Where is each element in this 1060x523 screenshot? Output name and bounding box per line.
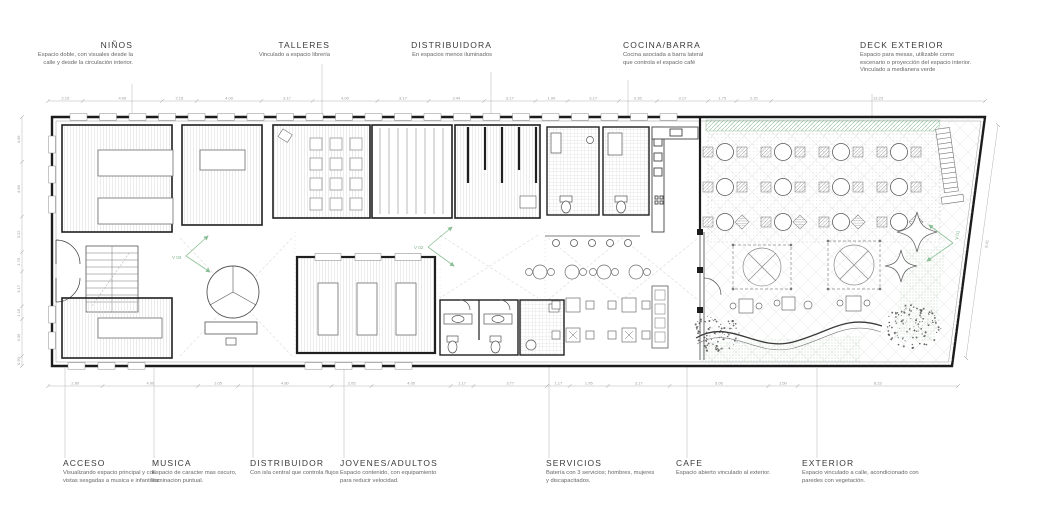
svg-text:4.00: 4.00 bbox=[341, 96, 350, 101]
annotation-cafe: CAFE Espacio abierto vinculado al exteri… bbox=[676, 458, 771, 478]
svg-text:5.06: 5.06 bbox=[715, 381, 724, 386]
svg-text:3.17: 3.17 bbox=[399, 96, 408, 101]
view-marker-v02-label: V 02 bbox=[414, 245, 424, 250]
svg-text:4.98: 4.98 bbox=[16, 185, 21, 194]
annotation-talleres: TALLERES Vinculado a espacio librería bbox=[220, 40, 330, 60]
annotation-cafe-title: CAFE bbox=[676, 458, 771, 468]
annotation-jovenes-adultos-caption: Espacio contenido, con equipamiento para… bbox=[340, 470, 448, 485]
svg-text:3.17: 3.17 bbox=[589, 96, 598, 101]
svg-text:3.44: 3.44 bbox=[452, 96, 461, 101]
room-ninos-doble bbox=[182, 125, 262, 225]
svg-text:1.15: 1.15 bbox=[16, 308, 21, 317]
deck-exterior-zone bbox=[695, 118, 984, 365]
annotation-ninos-title: NIÑOS bbox=[28, 40, 133, 50]
annotation-acceso: ACCESO Visualizando espacio principal y … bbox=[63, 458, 163, 485]
annotation-cocina-barra: COCINA/BARRA Cocina asociada a barra lat… bbox=[623, 40, 705, 67]
svg-text:3.77: 3.77 bbox=[506, 381, 515, 386]
annotation-talleres-caption: Vinculado a espacio librería bbox=[220, 52, 330, 60]
annotation-acceso-title: ACCESO bbox=[63, 458, 163, 468]
svg-text:3.36: 3.36 bbox=[16, 333, 21, 342]
svg-text:4.05: 4.05 bbox=[407, 381, 416, 386]
svg-text:3.17: 3.17 bbox=[16, 284, 21, 293]
svg-text:2.15: 2.15 bbox=[61, 96, 70, 101]
svg-text:1.17: 1.17 bbox=[458, 381, 467, 386]
annotation-exterior: EXTERIOR Espacio vinculado a calle, acon… bbox=[802, 458, 920, 485]
room-libreria bbox=[372, 125, 452, 218]
annotation-distribuidora: DISTRIBUIDORA En espacios menos iluminad… bbox=[382, 40, 492, 60]
svg-text:2.35: 2.35 bbox=[634, 96, 643, 101]
banos-servicios bbox=[440, 300, 564, 355]
annotation-distribuidor-title: DISTRIBUIDOR bbox=[250, 458, 342, 468]
annotation-servicios-caption: Batería con 3 servicios; hombres, mujere… bbox=[546, 470, 658, 485]
svg-text:3.17: 3.17 bbox=[679, 96, 688, 101]
room-distribuidora bbox=[455, 125, 540, 218]
svg-text:1.17: 1.17 bbox=[554, 381, 563, 386]
svg-text:8.23: 8.23 bbox=[874, 381, 883, 386]
annotation-cocina-barra-title: COCINA/BARRA bbox=[623, 40, 705, 50]
floor-plan-drawing: 2.154.902.154.003.174.003.173.443.171.99… bbox=[0, 0, 1060, 523]
dim-right-value: 8.41 bbox=[983, 239, 989, 248]
annotation-cafe-caption: Espacio abierto vinculado al exterior. bbox=[676, 470, 771, 478]
svg-text:4.00: 4.00 bbox=[225, 96, 234, 101]
svg-text:0.90: 0.90 bbox=[16, 356, 21, 365]
svg-text:13.23: 13.23 bbox=[873, 96, 884, 101]
annotation-ninos-caption: Espacio doble, con visuales desde la cal… bbox=[28, 52, 133, 67]
svg-text:3.17: 3.17 bbox=[506, 96, 515, 101]
svg-text:1.75: 1.75 bbox=[718, 96, 727, 101]
annotation-musica-caption: Espacio de caracter mas oscuro, iluminac… bbox=[152, 470, 247, 485]
svg-text:4.90: 4.90 bbox=[118, 96, 127, 101]
svg-text:4.90: 4.90 bbox=[146, 381, 155, 386]
svg-text:4.06: 4.06 bbox=[16, 135, 21, 144]
svg-text:4.80: 4.80 bbox=[281, 381, 290, 386]
svg-text:2.05: 2.05 bbox=[348, 381, 357, 386]
annotation-deck-exterior-title: DECK EXTERIOR bbox=[860, 40, 972, 50]
svg-text:2.15: 2.15 bbox=[175, 96, 184, 101]
svg-text:3.22: 3.22 bbox=[16, 230, 21, 239]
svg-text:3.17: 3.17 bbox=[635, 381, 644, 386]
floor-plan-page: 2.154.902.154.003.174.003.173.443.171.99… bbox=[0, 0, 1060, 523]
annotation-ninos: NIÑOS Espacio doble, con visuales desde … bbox=[28, 40, 133, 67]
annotation-deck-exterior: DECK EXTERIOR Espacio para mesas, utiliz… bbox=[860, 40, 972, 75]
annotation-exterior-title: EXTERIOR bbox=[802, 458, 920, 468]
annotation-distribuidor-caption: Con isla central que controla flujos bbox=[250, 470, 342, 478]
svg-text:1.75: 1.75 bbox=[16, 257, 21, 266]
view-marker-v03-label: V 03 bbox=[172, 255, 182, 260]
room-ninos bbox=[62, 125, 173, 232]
annotation-servicios-title: SERVICIOS bbox=[546, 458, 658, 468]
annotation-deck-exterior-caption: Espacio para mesas, utilizable como esce… bbox=[860, 52, 972, 75]
annotation-musica-title: MUSICA bbox=[152, 458, 247, 468]
annotation-talleres-title: TALLERES bbox=[220, 40, 330, 50]
annotation-distribuidora-caption: En espacios menos iluminados bbox=[382, 52, 492, 60]
annotation-acceso-caption: Visualizando espacio principal y con vis… bbox=[63, 470, 163, 485]
central-round-desk bbox=[205, 266, 259, 345]
annotation-distribuidora-title: DISTRIBUIDORA bbox=[382, 40, 492, 50]
svg-text:3.17: 3.17 bbox=[283, 96, 292, 101]
annotation-cocina-barra-caption: Cocina asociada a barra lateral que cont… bbox=[623, 52, 705, 67]
medianera-verde-strip bbox=[706, 120, 940, 131]
annotation-distribuidor: DISTRIBUIDOR Con isla central que contro… bbox=[250, 458, 342, 478]
svg-text:2.15: 2.15 bbox=[750, 96, 759, 101]
svg-text:2.05: 2.05 bbox=[214, 381, 223, 386]
room-musica bbox=[62, 298, 172, 358]
annotation-jovenes-adultos-title: JOVENES/ADULTOS bbox=[340, 458, 448, 468]
annotation-musica: MUSICA Espacio de caracter mas oscuro, i… bbox=[152, 458, 247, 485]
svg-text:1.99: 1.99 bbox=[548, 96, 557, 101]
svg-text:1.50: 1.50 bbox=[779, 381, 788, 386]
room-talleres bbox=[273, 125, 370, 218]
annotation-jovenes-adultos: JOVENES/ADULTOS Espacio contenido, con e… bbox=[340, 458, 448, 485]
svg-text:1.95: 1.95 bbox=[585, 381, 594, 386]
svg-text:2.80: 2.80 bbox=[71, 381, 80, 386]
annotation-servicios: SERVICIOS Batería con 3 servicios; hombr… bbox=[546, 458, 658, 485]
room-jovenes-adultos bbox=[297, 254, 435, 354]
annotation-exterior-caption: Espacio vinculado a calle, acondicionado… bbox=[802, 470, 920, 485]
